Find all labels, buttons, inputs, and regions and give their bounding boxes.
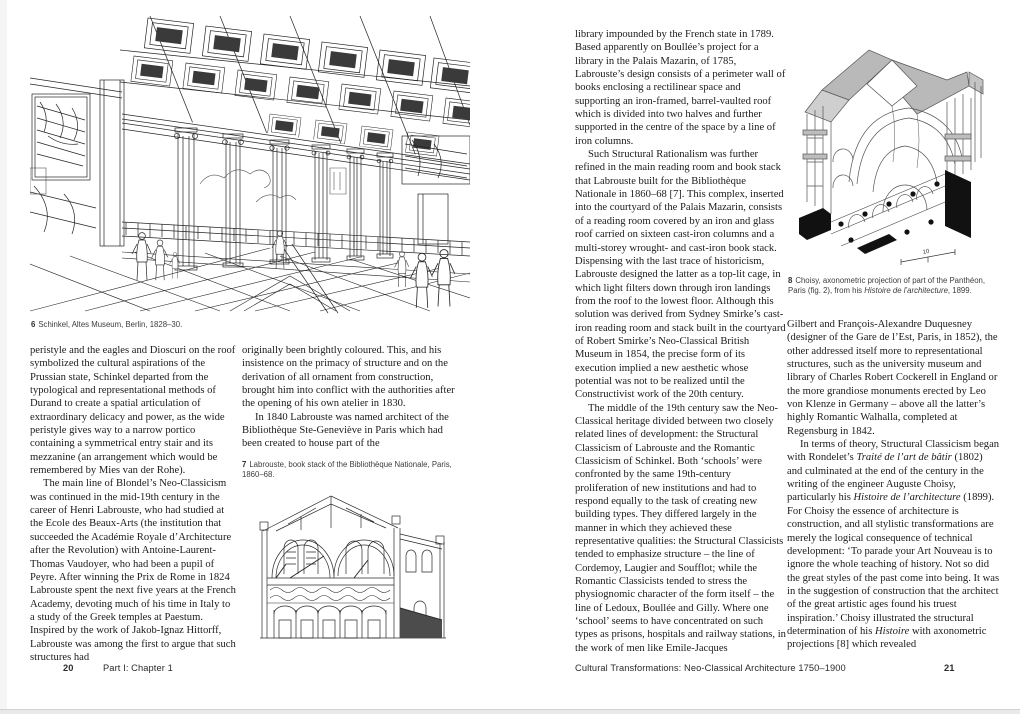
figure6-caption-text: Schinkel, Altes Museum, Berlin, 1828–30. bbox=[38, 320, 182, 329]
running-head-left: Part I: Chapter 1 bbox=[103, 663, 173, 673]
figure7-caption: 7Labrouste, book stack of the Bibliothèq… bbox=[242, 460, 454, 480]
body-paragraph: library impounded by the French state in… bbox=[575, 28, 786, 148]
axon-plan-poche bbox=[799, 170, 971, 254]
page-edge-bottom bbox=[0, 709, 1020, 714]
book-spread: 6Schinkel, Altes Museum, Berlin, 1828–30… bbox=[0, 0, 1020, 714]
right-page-column-2: Gilbert and François-Alexandre Duquesney… bbox=[787, 318, 1000, 652]
left-page-column-2: originally been brightly coloured. This,… bbox=[242, 344, 457, 451]
background-cityscape bbox=[30, 168, 346, 202]
coffered-ceiling bbox=[120, 16, 470, 166]
axon-left-arcade bbox=[803, 106, 853, 214]
body-paragraph: Gilbert and François-Alexandre Duquesney… bbox=[787, 318, 1000, 438]
body-paragraph: peristyle and the eagles and Dioscuri on… bbox=[30, 344, 237, 477]
figure8-caption: 8Choisy, axonometric projection of part … bbox=[788, 276, 993, 296]
section-lower-storey bbox=[274, 606, 386, 638]
body-paragraph: originally been brightly coloured. This,… bbox=[242, 344, 457, 411]
figure7-caption-text: Labrouste, book stack of the Bibliothèqu… bbox=[242, 460, 452, 479]
page-number-left: 20 bbox=[63, 663, 74, 673]
figure6-number: 6 bbox=[31, 320, 35, 329]
axon-scale-bar: 10 bbox=[901, 249, 955, 265]
figure-bibliotheque-section bbox=[246, 486, 461, 656]
axon-right-wall bbox=[945, 82, 981, 182]
section-right-annex bbox=[400, 534, 444, 638]
figure-choisy-axonometric: 10 bbox=[797, 42, 997, 270]
figure8-caption-text: Choisy, axonometric projection of part o… bbox=[788, 276, 985, 295]
scale-label: 10 bbox=[922, 249, 930, 256]
figure6-caption: 6Schinkel, Altes Museum, Berlin, 1828–30… bbox=[31, 320, 451, 330]
body-paragraph: The middle of the 19th century saw the N… bbox=[575, 402, 786, 656]
section-vaults bbox=[272, 540, 394, 578]
section-roof-truss bbox=[260, 496, 400, 531]
running-head-right: Cultural Transformations: Neo-Classical … bbox=[575, 663, 846, 673]
section-frieze bbox=[267, 588, 394, 604]
left-page-column-1: peristyle and the eagles and Dioscuri on… bbox=[30, 344, 237, 664]
body-paragraph: Such Structural Rationalism was further … bbox=[575, 148, 786, 402]
body-paragraph: In 1840 Labrouste was named architect of… bbox=[242, 411, 457, 451]
figure-altes-museum bbox=[30, 16, 470, 316]
body-paragraph: The main line of Blondel’s Neo-Classicis… bbox=[30, 477, 237, 664]
page-number-right: 21 bbox=[944, 663, 955, 673]
right-page-column-1: library impounded by the French state in… bbox=[575, 28, 786, 655]
right-wall bbox=[402, 136, 470, 244]
body-paragraph: In terms of theory, Structural Classicis… bbox=[787, 438, 1000, 652]
left-wall-mural bbox=[30, 78, 124, 246]
page-edge-left bbox=[0, 0, 7, 714]
figure7-number: 7 bbox=[242, 460, 246, 469]
figure8-number: 8 bbox=[788, 276, 792, 285]
